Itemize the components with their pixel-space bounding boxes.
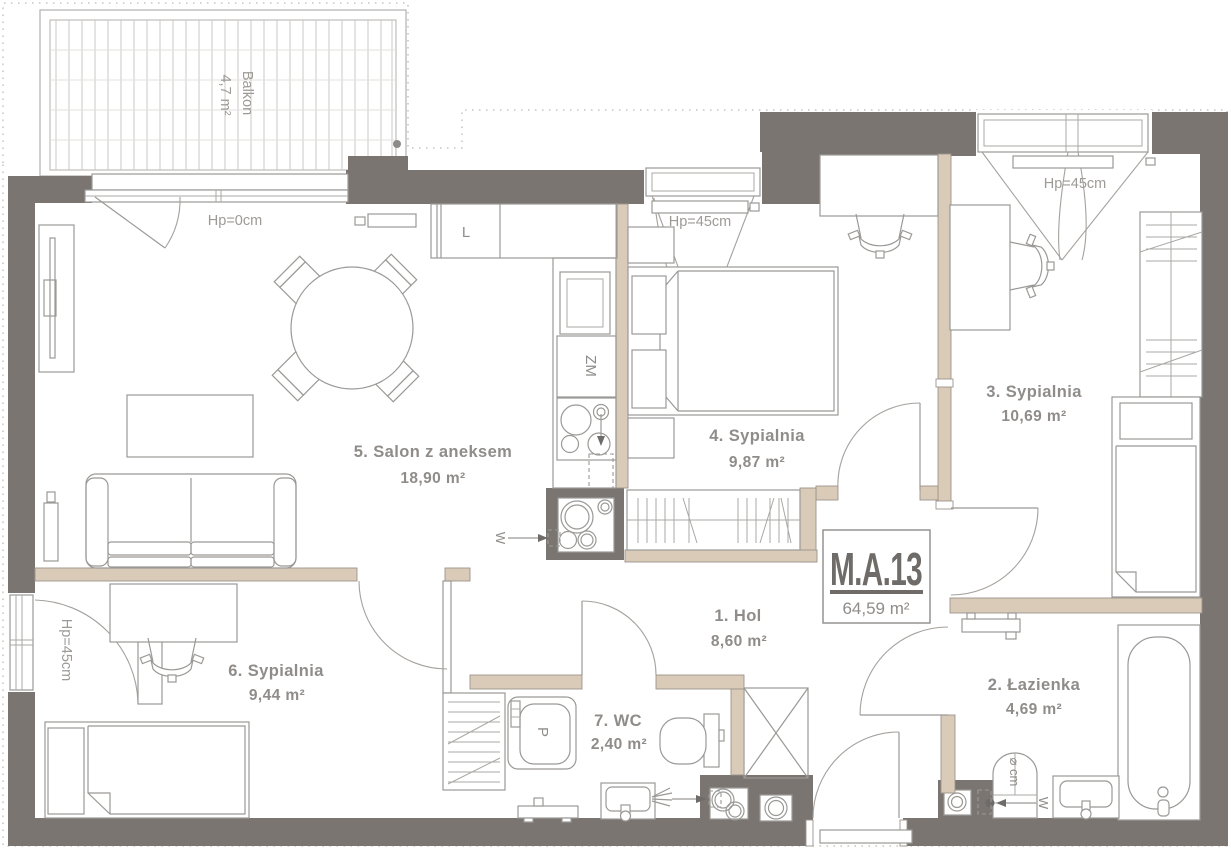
coffee-table [127,395,253,457]
balcony-area: 4,7 m² [217,74,233,115]
kitchen-sink-hob [557,398,616,460]
floor-lamp [44,492,58,561]
apartment-id: M.A.13 [830,543,922,595]
balcony-corner-post [393,140,401,148]
hp-label-bedroom6: Hp=45cm [58,619,74,681]
balcony-name: Balkon [239,71,255,115]
tv-unit [39,225,74,372]
toilet [660,714,724,767]
room-label-bedroom6: 6. Sypialnia [228,662,324,680]
room-area-bedroom6: 9,44 m² [249,687,305,704]
hallway-wardrobe [627,490,800,550]
single-bed [45,722,249,818]
room-label-bedroom4: 4. Sypialnia [709,427,805,445]
room-area-salon: 18,90 m² [400,470,465,487]
bathroom-furniture: ⌀ cm W [962,613,1200,820]
bathroom-radiator [962,613,1020,639]
water-heater: ⌀ cm [993,753,1037,818]
entrance-door [813,732,912,843]
washing-machine: P [508,697,576,769]
water-symbol: W [493,532,508,545]
desk [820,155,938,216]
wc-radiator [518,798,578,822]
desk-chair [1010,234,1054,298]
nightstand [628,418,674,458]
single-bed [1112,397,1200,597]
balcony-window [85,174,348,248]
room-label-bedroom3: 3. Sypialnia [986,383,1082,401]
bathtub [1118,625,1200,820]
fridge-label: L [462,224,470,241]
room-label-hol: 1. Hol [714,607,761,625]
floor-plan: Balkon 4,7 m² [0,0,1231,849]
hp-label-salon: Hp=0cm [208,213,262,229]
room-label-bathroom: 2. Łazienka [988,676,1081,694]
room-label-salon: 5. Salon z aneksem [354,443,513,461]
salon-radiator [355,214,416,227]
living-room-furniture [39,214,419,568]
heater-diameter-label: ⌀ cm [1007,758,1022,787]
room-area-bedroom4: 9,87 m² [729,454,785,471]
wardrobe [1140,212,1202,397]
bedroom3-furniture [950,205,1202,597]
desk-chair [848,214,912,258]
storage-shelves [443,693,505,790]
apartment-id-box: M.A.13 64,59 m² [823,530,930,623]
bathroom-sink [1053,776,1119,819]
hp-label-bedroom4: Hp=45cm [669,214,731,230]
dining-table [291,267,413,389]
dishwasher-label: ZM [582,355,599,377]
room-area-bathroom: 4,69 m² [1006,701,1062,718]
dining-set [272,254,418,401]
sofa [86,474,296,568]
apartment-total-area: 64,59 m² [842,599,909,618]
wc-door [582,601,656,675]
wc-furniture: P [443,693,724,822]
room-label-wc: 7. WC [594,712,642,730]
entrance-doormat [820,830,912,843]
washing-machine-label: P [534,727,551,737]
room-area-bedroom3: 10,69 m² [1001,408,1066,425]
balcony: Balkon 4,7 m² [40,10,406,176]
water-symbol: W [1036,797,1051,810]
hp-label-bedroom3: Hp=45cm [1044,176,1106,192]
desk [950,205,1010,330]
bathroom-door [860,627,948,715]
desk [110,584,237,642]
room-area-wc: 2,40 m² [591,736,647,753]
room-area-hol: 8,60 m² [711,633,767,650]
nightstand [628,227,674,263]
bedroom4-door [838,403,920,490]
bedroom6-door [359,581,451,693]
bedroom3-door [951,508,1038,595]
